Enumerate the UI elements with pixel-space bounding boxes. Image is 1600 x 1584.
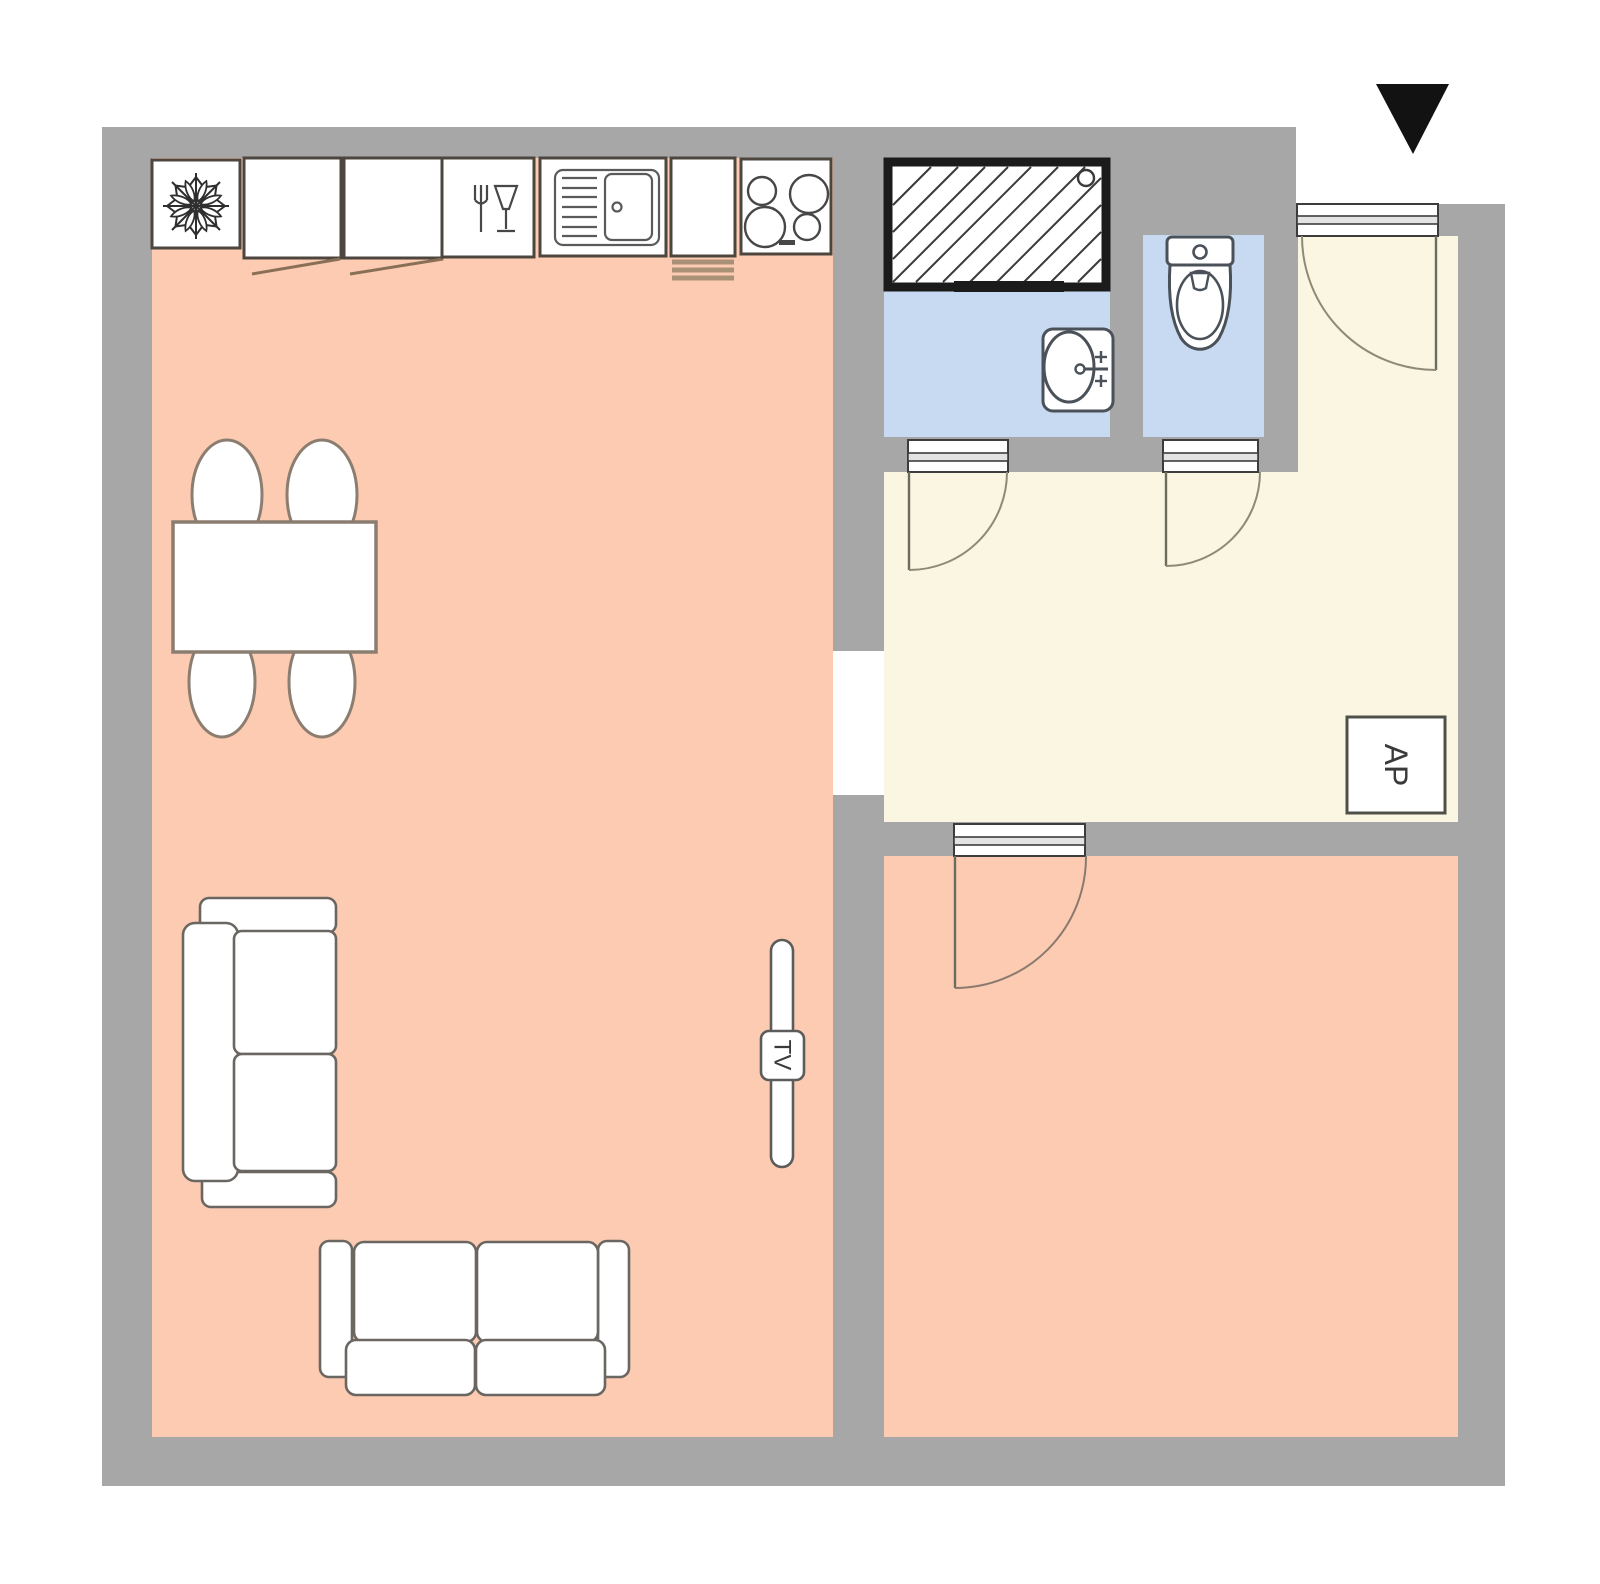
svg-text:AP: AP (1378, 744, 1414, 787)
svg-text:TV: TV (769, 1040, 796, 1071)
